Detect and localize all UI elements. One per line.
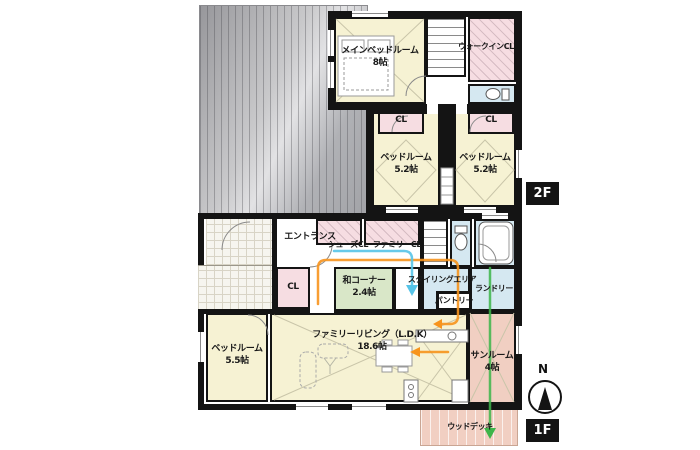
floor-badge-1f: 1F xyxy=(526,419,559,442)
closet-next-to-wa-corner xyxy=(394,267,420,313)
window-sunroom-right xyxy=(516,326,522,354)
floor-plan-image: メインベッドルーム 8帖 ウォークインCL CL CL ベッドルーム 5.2帖 … xyxy=(0,0,700,450)
label-main-bedroom: メインベッドルーム 8帖 xyxy=(334,46,426,69)
window-bedroom-b-right xyxy=(516,150,522,178)
room-bathroom xyxy=(474,219,516,267)
window-bath-top xyxy=(482,213,508,219)
wall-below-porch xyxy=(198,309,310,314)
label-bedroom-b: ベッドルーム 5.2帖 xyxy=(454,153,516,176)
wall-2f-bedroom-divider xyxy=(440,106,454,213)
room-toilet-2f xyxy=(468,84,516,104)
label-sunroom: サンルーム 4帖 xyxy=(468,351,516,374)
wall-living-top xyxy=(334,309,516,314)
room-living-ldk xyxy=(270,313,468,402)
label-wa-corner: 和コーナー 2.4帖 xyxy=(334,276,394,299)
label-closet-1f: CL xyxy=(276,282,310,294)
room-toilet-1f xyxy=(450,219,472,267)
label-closet-b: CL xyxy=(468,115,514,127)
entrance-porch xyxy=(198,265,276,311)
window-bedroom-1f-left xyxy=(198,332,204,362)
label-bedroom-a: ベッドルーム 5.2帖 xyxy=(372,153,440,176)
label-wood-deck: ウッドデッキ xyxy=(428,422,512,432)
label-living: ファミリーリビング（L.D.K） 18.6帖 xyxy=(290,330,454,353)
wall-stairs-left xyxy=(420,217,424,311)
label-laundry: ランドリー xyxy=(470,284,518,294)
label-closet-a: CL xyxy=(378,115,424,127)
compass-north-label: N xyxy=(535,362,551,376)
floor-badge-2f: 2F xyxy=(526,182,559,205)
label-family-closet: ファミリーCL xyxy=(366,240,428,250)
window-living-bottom-1 xyxy=(296,404,328,410)
door-opening-bedroom-b xyxy=(456,104,467,114)
label-walk-in-closet: ウォークインCL xyxy=(448,42,524,52)
label-pantry: パントリー xyxy=(432,296,476,306)
window-2f-top xyxy=(352,11,388,17)
door-opening-bedroom-a xyxy=(427,104,438,114)
compass-icon xyxy=(528,380,562,414)
window-living-bottom-2 xyxy=(352,404,386,410)
label-bedroom-1f: ベッドルーム 5.5帖 xyxy=(206,344,268,367)
window-bedroom-a-bottom xyxy=(386,207,418,213)
compass-needle-icon xyxy=(538,387,552,410)
